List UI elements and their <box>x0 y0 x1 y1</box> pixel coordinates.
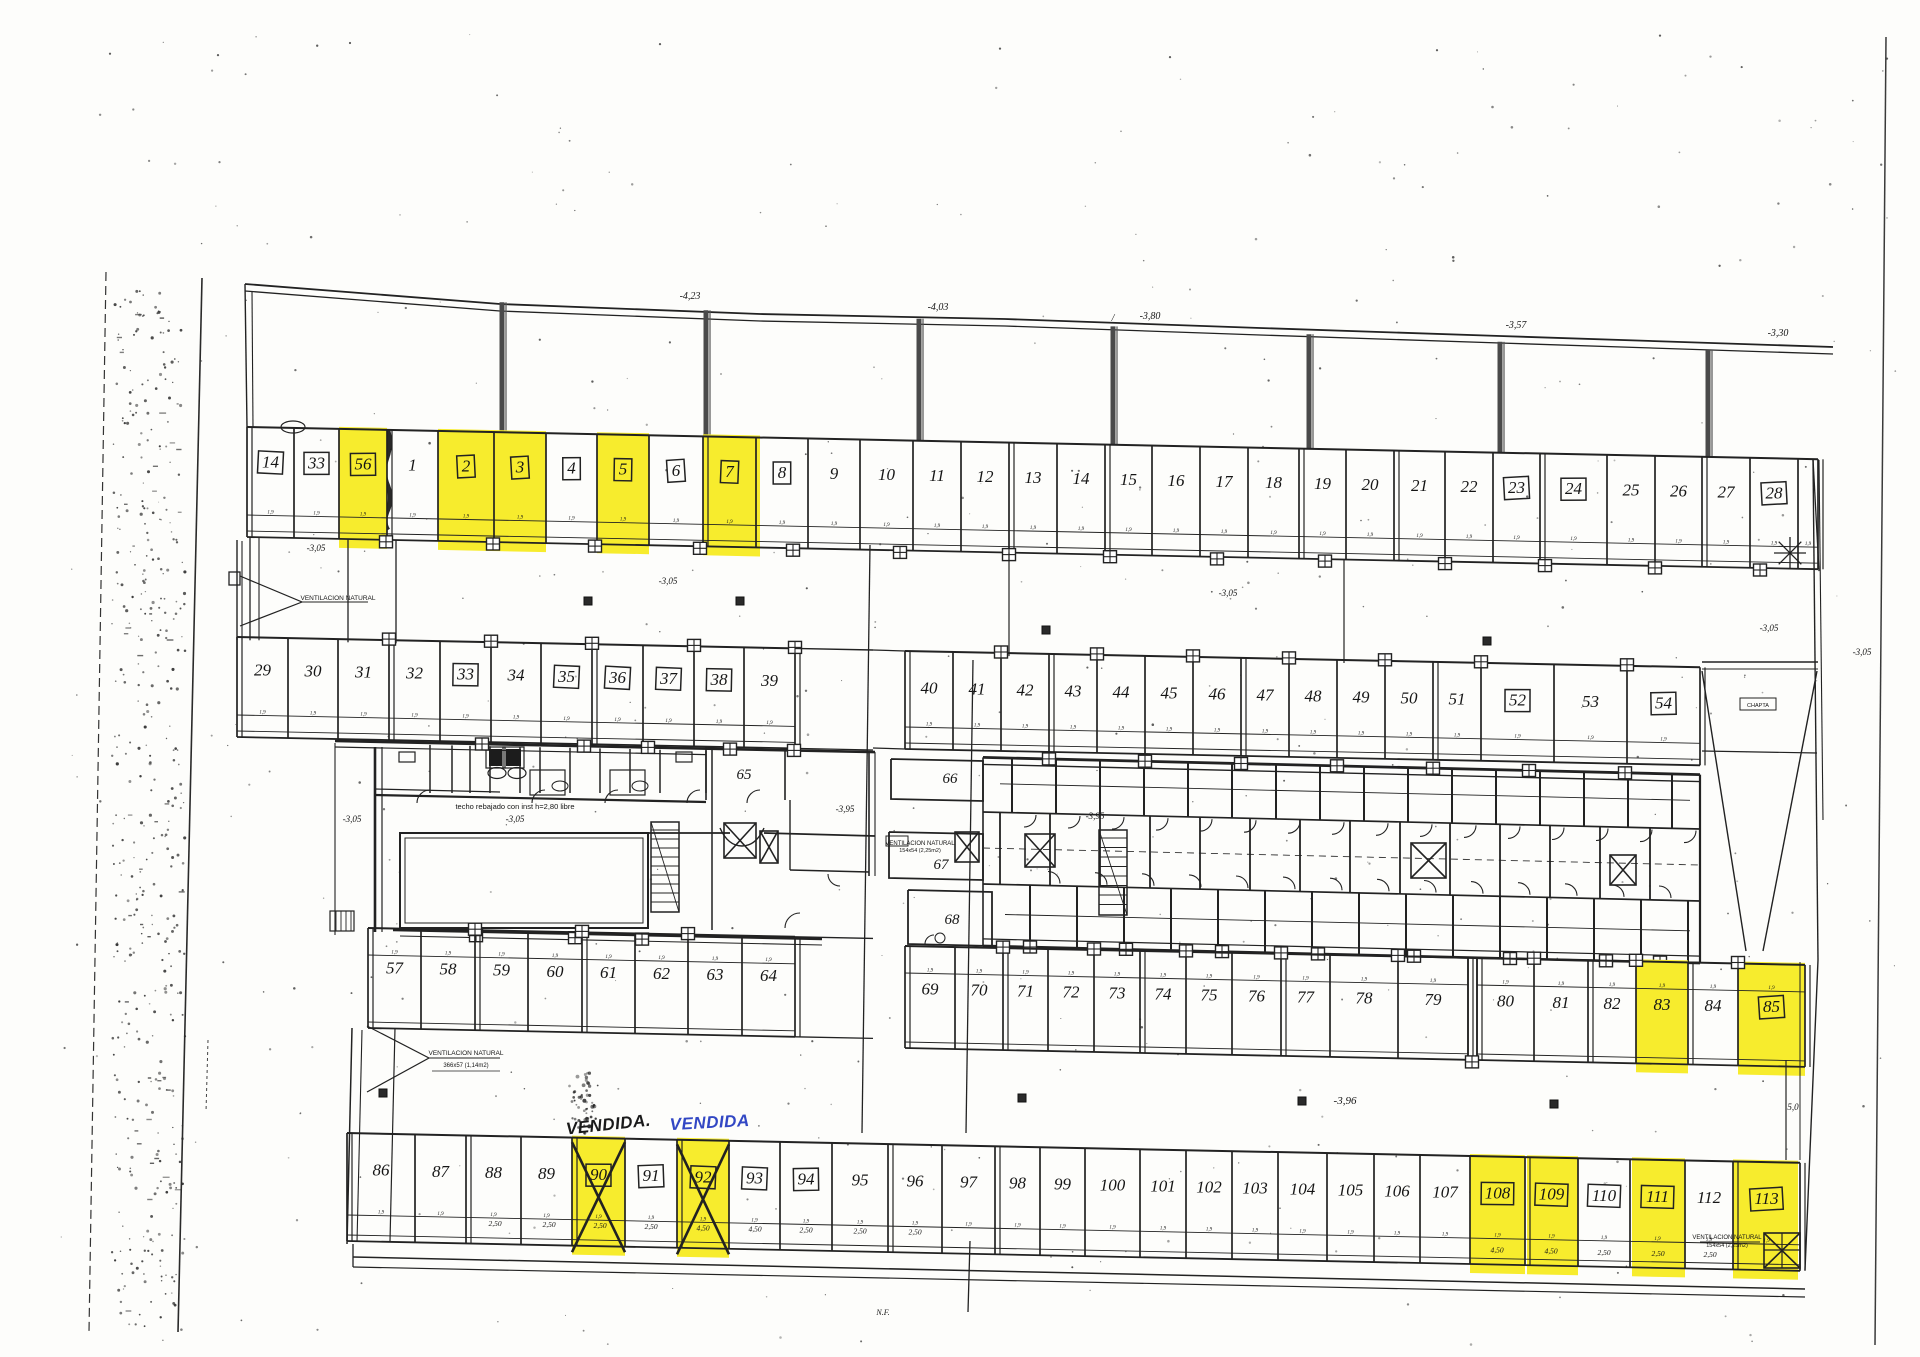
svg-text:89: 89 <box>538 1164 556 1183</box>
svg-text:42: 42 <box>1017 681 1035 700</box>
svg-text:1,9: 1,9 <box>1442 1233 1449 1238</box>
svg-text:10: 10 <box>878 465 896 484</box>
svg-text:1,9: 1,9 <box>700 1217 707 1222</box>
svg-text:1,9: 1,9 <box>1221 530 1228 535</box>
svg-text:1,9: 1,9 <box>1654 1237 1661 1242</box>
svg-text:1,9: 1,9 <box>1454 733 1461 738</box>
svg-text:88: 88 <box>485 1163 503 1182</box>
svg-text:73: 73 <box>1109 984 1126 1003</box>
svg-text:1,9: 1,9 <box>1416 534 1423 539</box>
svg-text:1,9: 1,9 <box>259 711 266 716</box>
svg-text:106: 106 <box>1384 1182 1410 1201</box>
svg-text:80: 80 <box>1497 992 1515 1011</box>
svg-text:103: 103 <box>1242 1179 1268 1198</box>
svg-text:1,9: 1,9 <box>779 521 786 526</box>
svg-text:9: 9 <box>830 464 839 483</box>
svg-text:1,9: 1,9 <box>1166 727 1173 732</box>
svg-text:31: 31 <box>354 663 372 682</box>
svg-text:1,9: 1,9 <box>1310 730 1317 735</box>
svg-text:99: 99 <box>1054 1175 1072 1194</box>
svg-text:12: 12 <box>977 467 995 486</box>
svg-text:1,9: 1,9 <box>1160 1227 1167 1232</box>
svg-text:61: 61 <box>600 963 617 982</box>
svg-text:4,50: 4,50 <box>696 1223 709 1232</box>
svg-text:1,9: 1,9 <box>716 720 723 725</box>
svg-text:1,9: 1,9 <box>313 511 320 516</box>
svg-text:83: 83 <box>1654 995 1671 1014</box>
svg-text:-3,30: -3,30 <box>1768 328 1789 339</box>
svg-text:1,9: 1,9 <box>726 520 733 525</box>
svg-text:-3,96: -3,96 <box>1334 1095 1357 1107</box>
svg-text:14: 14 <box>1073 469 1091 488</box>
svg-text:2,50: 2,50 <box>542 1220 555 1229</box>
svg-text:43: 43 <box>1065 681 1082 700</box>
svg-text:4: 4 <box>567 459 576 478</box>
svg-text:1,9: 1,9 <box>310 712 317 717</box>
svg-text:79: 79 <box>1425 990 1443 1009</box>
svg-text:78: 78 <box>1356 989 1374 1008</box>
svg-text:2,50: 2,50 <box>799 1225 812 1234</box>
svg-text:86: 86 <box>373 1161 391 1180</box>
svg-text:154x54 (2,25m2): 154x54 (2,25m2) <box>1706 1243 1748 1249</box>
svg-text:62: 62 <box>653 964 671 983</box>
svg-text:38: 38 <box>710 670 729 689</box>
svg-text:34: 34 <box>507 666 526 685</box>
svg-text:77: 77 <box>1297 987 1316 1006</box>
svg-text:1,9: 1,9 <box>857 1221 864 1226</box>
svg-text:45: 45 <box>1161 683 1178 702</box>
svg-text:1,9: 1,9 <box>883 523 890 528</box>
svg-text:1,9: 1,9 <box>1068 972 1075 977</box>
svg-text:-3,05: -3,05 <box>343 814 362 824</box>
svg-text:1,9: 1,9 <box>965 1223 972 1228</box>
svg-text:47: 47 <box>1257 685 1276 704</box>
svg-text:1,9: 1,9 <box>411 714 418 719</box>
svg-text:1,9: 1,9 <box>1710 985 1717 990</box>
svg-text:2: 2 <box>462 457 471 476</box>
svg-text:-4,23: -4,23 <box>680 291 701 302</box>
svg-text:1,9: 1,9 <box>1125 528 1132 533</box>
svg-text:1,9: 1,9 <box>614 718 621 723</box>
svg-text:69: 69 <box>922 980 940 999</box>
svg-text:11: 11 <box>929 466 945 485</box>
svg-text:1,9: 1,9 <box>1270 531 1277 536</box>
svg-text:53: 53 <box>1582 692 1599 711</box>
svg-text:91: 91 <box>643 1166 660 1185</box>
svg-text:63: 63 <box>707 965 724 984</box>
svg-text:1,9: 1,9 <box>1587 736 1594 741</box>
svg-text:-3,05: -3,05 <box>506 814 525 824</box>
svg-text:17: 17 <box>1216 472 1235 491</box>
svg-text:71: 71 <box>1017 982 1034 1001</box>
svg-text:1,9: 1,9 <box>543 1214 550 1219</box>
svg-text:84: 84 <box>1705 996 1723 1015</box>
svg-text:1,9: 1,9 <box>1628 538 1635 543</box>
svg-text:1,9: 1,9 <box>1173 529 1180 534</box>
svg-text:1,9: 1,9 <box>1070 725 1077 730</box>
svg-text:35: 35 <box>557 667 575 686</box>
svg-text:15: 15 <box>1120 470 1137 489</box>
svg-text:46: 46 <box>1209 684 1227 703</box>
svg-text:59: 59 <box>493 961 511 980</box>
svg-text:-3,05: -3,05 <box>307 543 326 553</box>
svg-text:48: 48 <box>1305 686 1323 705</box>
svg-text:1,9: 1,9 <box>665 719 672 724</box>
svg-text:4,50: 4,50 <box>748 1224 761 1233</box>
svg-text:13: 13 <box>1025 468 1042 487</box>
svg-text:26: 26 <box>1670 481 1688 500</box>
svg-text:-3,05: -3,05 <box>1853 647 1872 657</box>
svg-text:-3,05: -3,05 <box>1219 588 1238 598</box>
svg-text:2,50: 2,50 <box>1597 1248 1610 1257</box>
svg-text:N.F.: N.F. <box>875 1308 889 1317</box>
svg-text:154x54 (2,25m2): 154x54 (2,25m2) <box>899 848 941 854</box>
svg-text:14: 14 <box>262 453 280 472</box>
svg-text:41: 41 <box>969 680 986 699</box>
svg-text:4,50: 4,50 <box>1490 1246 1503 1255</box>
svg-text:1,9: 1,9 <box>1394 1232 1401 1237</box>
svg-text:1,9: 1,9 <box>437 1212 444 1217</box>
svg-text:39: 39 <box>760 671 779 690</box>
svg-text:1,9: 1,9 <box>1109 1226 1116 1231</box>
svg-text:VENTILACION NATURAL: VENTILACION NATURAL <box>428 1050 503 1057</box>
svg-text:1,9: 1,9 <box>1548 1235 1555 1240</box>
svg-text:104: 104 <box>1290 1180 1316 1199</box>
svg-text:96: 96 <box>907 1172 925 1191</box>
svg-text:82: 82 <box>1604 994 1622 1013</box>
svg-text:70: 70 <box>971 981 989 1000</box>
svg-text:74: 74 <box>1155 984 1173 1003</box>
svg-text:100: 100 <box>1100 1176 1126 1195</box>
svg-text:1,9: 1,9 <box>513 716 520 721</box>
svg-text:VENTILACION NATURAL: VENTILACION NATURAL <box>1692 1235 1762 1241</box>
svg-text:87: 87 <box>432 1162 451 1181</box>
svg-text:85: 85 <box>1763 997 1780 1016</box>
svg-text:36: 36 <box>608 668 627 687</box>
svg-text:76: 76 <box>1248 986 1266 1005</box>
svg-text:110: 110 <box>1592 1186 1617 1205</box>
svg-text:18: 18 <box>1265 473 1283 492</box>
svg-text:-3,80: -3,80 <box>1140 311 1161 322</box>
svg-text:1,9: 1,9 <box>1675 539 1682 544</box>
svg-text:30: 30 <box>304 662 323 681</box>
svg-text:1,9: 1,9 <box>934 524 941 529</box>
svg-text:2,50: 2,50 <box>853 1227 866 1236</box>
svg-text:1,9: 1,9 <box>648 1216 655 1221</box>
svg-text:1,9: 1,9 <box>673 519 680 524</box>
svg-text:54: 54 <box>1655 694 1673 713</box>
svg-text:37: 37 <box>659 669 679 688</box>
svg-text:23: 23 <box>1508 478 1525 497</box>
svg-text:1,9: 1,9 <box>1078 527 1085 532</box>
svg-text:67: 67 <box>934 857 951 873</box>
svg-text:1,9: 1,9 <box>982 525 989 530</box>
svg-text:1,9: 1,9 <box>1430 979 1437 984</box>
svg-text:27: 27 <box>1718 482 1737 501</box>
svg-text:1,9: 1,9 <box>1723 540 1730 545</box>
svg-text:40: 40 <box>921 679 939 698</box>
svg-text:22: 22 <box>1461 477 1479 496</box>
svg-text:1,9: 1,9 <box>1466 535 1473 540</box>
svg-text:105: 105 <box>1338 1181 1364 1200</box>
svg-text:1,9: 1,9 <box>1030 526 1037 531</box>
svg-text:1,9: 1,9 <box>517 516 524 521</box>
svg-text:CHAPTA: CHAPTA <box>1747 703 1769 709</box>
svg-text:19: 19 <box>1314 474 1332 493</box>
svg-text:1,9: 1,9 <box>927 969 934 974</box>
svg-text:60: 60 <box>547 962 565 981</box>
svg-text:1: 1 <box>408 455 417 474</box>
svg-text:VENTILACION NATURAL: VENTILACION NATURAL <box>300 595 375 602</box>
svg-text:1,9: 1,9 <box>490 1213 497 1218</box>
svg-text:1,9: 1,9 <box>1252 1229 1259 1234</box>
svg-text:2,50: 2,50 <box>908 1228 921 1237</box>
svg-text:1,9: 1,9 <box>1660 738 1667 743</box>
svg-text:-3,95: -3,95 <box>836 804 855 814</box>
svg-text:VENTILACION NATURAL: VENTILACION NATURAL <box>885 841 955 847</box>
svg-text:1,9: 1,9 <box>1014 1224 1021 1229</box>
svg-text:1,9: 1,9 <box>463 515 470 520</box>
svg-text:94: 94 <box>798 1169 816 1188</box>
svg-text:1,9: 1,9 <box>1299 1230 1306 1235</box>
svg-text:51: 51 <box>1449 689 1466 708</box>
svg-text:49: 49 <box>1353 687 1371 706</box>
svg-text:1,9: 1,9 <box>595 1215 602 1220</box>
svg-text:1,9: 1,9 <box>498 953 505 958</box>
svg-text:1,9: 1,9 <box>1253 975 1260 980</box>
svg-text:1,9: 1,9 <box>1609 983 1616 988</box>
svg-text:1,9: 1,9 <box>1022 725 1029 730</box>
svg-text:32: 32 <box>405 664 424 683</box>
svg-text:8: 8 <box>778 463 787 482</box>
svg-text:109: 109 <box>1539 1185 1565 1204</box>
svg-text:1,9: 1,9 <box>1502 981 1509 986</box>
svg-text:1,9: 1,9 <box>391 951 398 956</box>
svg-text:1,9: 1,9 <box>751 1218 758 1223</box>
svg-text:33: 33 <box>307 453 325 472</box>
svg-text:1,9: 1,9 <box>1406 732 1413 737</box>
svg-text:1,9: 1,9 <box>926 723 933 728</box>
svg-text:1,9: 1,9 <box>976 970 983 975</box>
svg-text:5,0: 5,0 <box>1787 1102 1799 1112</box>
svg-text:29: 29 <box>254 661 272 680</box>
svg-text:-3,95: -3,95 <box>1086 811 1105 821</box>
svg-text:98: 98 <box>1009 1174 1027 1193</box>
svg-text:1,9: 1,9 <box>766 721 773 726</box>
svg-text:1,9: 1,9 <box>1302 976 1309 981</box>
svg-text:-3,05: -3,05 <box>659 576 678 586</box>
svg-text:1,9: 1,9 <box>1558 982 1565 987</box>
svg-text:52: 52 <box>1509 691 1527 710</box>
svg-text:1,9: 1,9 <box>658 956 665 961</box>
svg-text:24: 24 <box>1565 479 1583 498</box>
svg-text:1,9: 1,9 <box>1513 536 1520 541</box>
svg-text:1,9: 1,9 <box>831 522 838 527</box>
svg-text:68: 68 <box>945 912 961 928</box>
svg-text:44: 44 <box>1113 682 1131 701</box>
svg-text:1,9: 1,9 <box>1358 731 1365 736</box>
svg-text:1,9: 1,9 <box>912 1222 919 1227</box>
svg-text:107: 107 <box>1432 1183 1459 1202</box>
svg-text:111: 111 <box>1646 1187 1669 1206</box>
svg-text:1,9: 1,9 <box>568 517 575 522</box>
svg-text:1,9: 1,9 <box>803 1219 810 1224</box>
svg-text:2,50: 2,50 <box>644 1222 657 1231</box>
svg-text:1,9: 1,9 <box>1805 542 1812 547</box>
svg-text:101: 101 <box>1150 1177 1176 1196</box>
svg-text:1,9: 1,9 <box>1262 729 1269 734</box>
svg-text:64: 64 <box>760 966 778 985</box>
svg-text:1,9: 1,9 <box>605 955 612 960</box>
svg-text:25: 25 <box>1623 480 1640 499</box>
svg-text:1,9: 1,9 <box>1114 973 1121 978</box>
svg-text:56: 56 <box>355 454 373 473</box>
svg-text:1,9: 1,9 <box>1206 974 1213 979</box>
svg-text:1,9: 1,9 <box>1367 533 1374 538</box>
svg-text:1,9: 1,9 <box>1319 532 1326 537</box>
svg-text:5: 5 <box>619 460 628 479</box>
svg-text:1,9: 1,9 <box>462 715 469 720</box>
svg-text:1,9: 1,9 <box>445 952 452 957</box>
svg-text:-4,03: -4,03 <box>928 302 949 313</box>
svg-text:2,50: 2,50 <box>593 1221 606 1230</box>
svg-text:2,50: 2,50 <box>1703 1250 1716 1259</box>
svg-text:1,9: 1,9 <box>1768 986 1775 991</box>
svg-text:1,9: 1,9 <box>378 1211 385 1216</box>
svg-text:4,50: 4,50 <box>1544 1247 1557 1256</box>
svg-text:75: 75 <box>1201 985 1218 1004</box>
svg-text:1,9: 1,9 <box>620 518 627 523</box>
svg-text:-3,57: -3,57 <box>1506 320 1528 331</box>
svg-text:-3,05: -3,05 <box>1760 623 1779 633</box>
svg-text:28: 28 <box>1766 483 1784 502</box>
svg-text:16: 16 <box>1168 471 1186 490</box>
svg-text:1,9: 1,9 <box>1214 728 1221 733</box>
svg-text:6: 6 <box>672 461 681 480</box>
svg-text:3: 3 <box>515 458 525 477</box>
svg-text:72: 72 <box>1063 983 1081 1002</box>
svg-text:108: 108 <box>1485 1184 1511 1203</box>
svg-text:1,9: 1,9 <box>1771 541 1778 546</box>
svg-text:1,9: 1,9 <box>267 511 274 516</box>
svg-text:20: 20 <box>1362 475 1380 494</box>
svg-text:65: 65 <box>737 767 753 783</box>
svg-text:97: 97 <box>960 1173 979 1192</box>
svg-text:2,50: 2,50 <box>488 1219 501 1228</box>
svg-text:102: 102 <box>1196 1178 1222 1197</box>
svg-text:1,9: 1,9 <box>1601 1236 1608 1241</box>
svg-text:1,9: 1,9 <box>1118 726 1125 731</box>
svg-text:1,9: 1,9 <box>1659 984 1666 989</box>
svg-text:1,9: 1,9 <box>409 513 416 518</box>
svg-text:21: 21 <box>1411 476 1428 495</box>
svg-text:66: 66 <box>943 771 959 787</box>
svg-text:81: 81 <box>1553 993 1570 1012</box>
svg-text:57: 57 <box>386 959 405 978</box>
svg-text:113: 113 <box>1754 1189 1778 1208</box>
svg-text:33: 33 <box>456 665 474 684</box>
svg-text:1,9: 1,9 <box>360 512 367 517</box>
svg-text:1,9: 1,9 <box>1347 1231 1354 1236</box>
svg-text:1,9: 1,9 <box>765 958 772 963</box>
svg-text:366x57 (1,14m2): 366x57 (1,14m2) <box>443 1063 488 1069</box>
svg-text:1,9: 1,9 <box>1206 1228 1213 1233</box>
svg-text:1,9: 1,9 <box>1570 537 1577 542</box>
svg-text:1,9: 1,9 <box>360 713 367 718</box>
svg-text:1,9: 1,9 <box>974 724 981 729</box>
svg-text:1,9: 1,9 <box>1361 978 1368 983</box>
svg-text:93: 93 <box>746 1168 763 1187</box>
svg-text:1,9: 1,9 <box>552 954 559 959</box>
svg-text:50: 50 <box>1401 688 1419 707</box>
svg-text:1,9: 1,9 <box>1494 1234 1501 1239</box>
svg-text:112: 112 <box>1697 1188 1722 1207</box>
svg-text:1,9: 1,9 <box>563 717 570 722</box>
svg-text:95: 95 <box>852 1171 869 1190</box>
svg-text:1,9: 1,9 <box>1059 1225 1066 1230</box>
svg-text:58: 58 <box>440 960 458 979</box>
svg-text:1,9: 1,9 <box>1514 735 1521 740</box>
svg-text:2,50: 2,50 <box>1651 1249 1664 1258</box>
svg-text:1,9: 1,9 <box>1160 973 1167 978</box>
svg-text:techo rebajado con inst h=2,80: techo rebajado con inst h=2,80 libre <box>455 802 574 811</box>
svg-text:1,9: 1,9 <box>1022 971 1029 976</box>
svg-text:1,9: 1,9 <box>712 957 719 962</box>
